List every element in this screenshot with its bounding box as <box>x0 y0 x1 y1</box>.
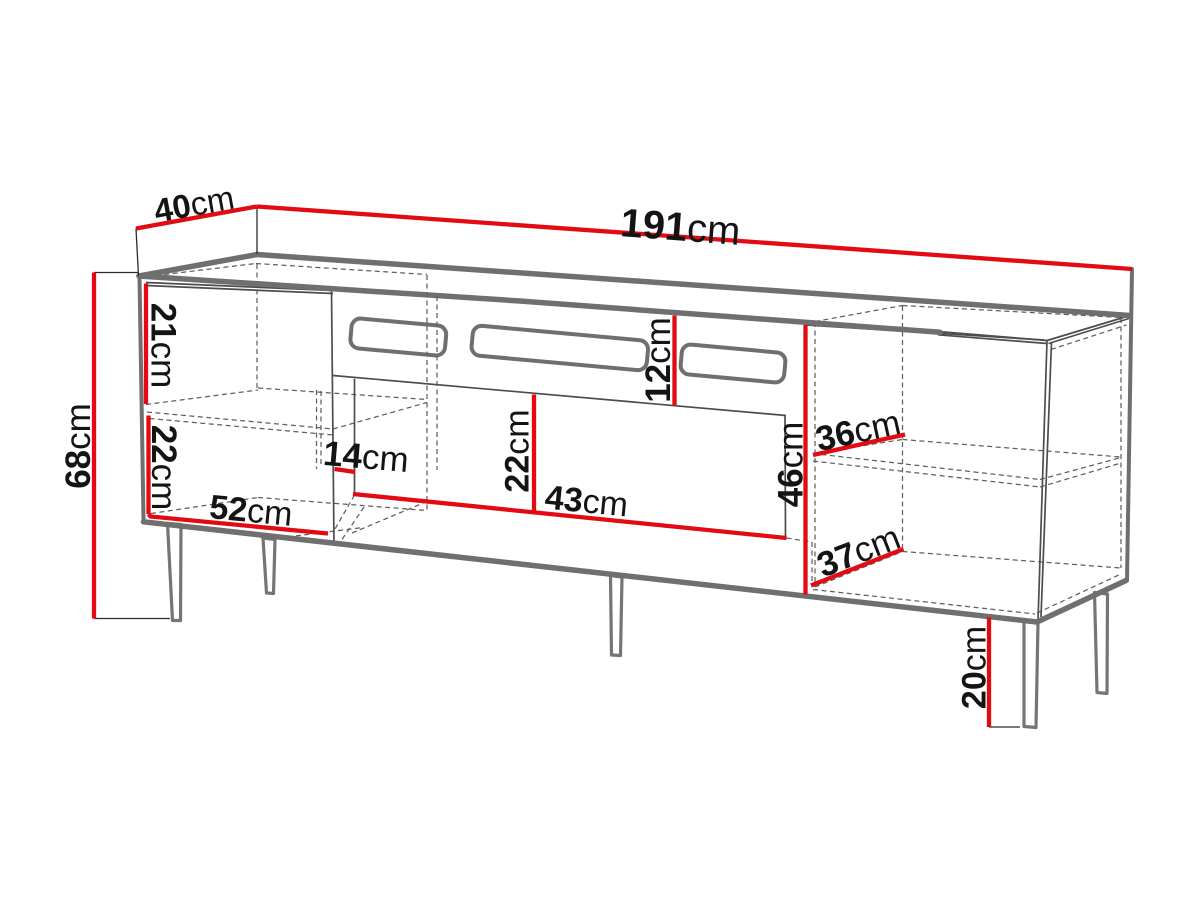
svg-text:12cm: 12cm <box>639 317 678 403</box>
svg-text:22cm: 22cm <box>499 409 537 492</box>
svg-text:43cm: 43cm <box>543 479 629 525</box>
svg-text:191cm: 191cm <box>619 201 742 254</box>
svg-text:52cm: 52cm <box>208 488 294 534</box>
svg-text:14cm: 14cm <box>322 433 411 479</box>
svg-text:68cm: 68cm <box>59 403 98 489</box>
svg-text:20cm: 20cm <box>956 626 994 709</box>
svg-text:21cm: 21cm <box>144 303 183 389</box>
svg-text:46cm: 46cm <box>771 422 810 508</box>
svg-text:22cm: 22cm <box>145 425 184 511</box>
